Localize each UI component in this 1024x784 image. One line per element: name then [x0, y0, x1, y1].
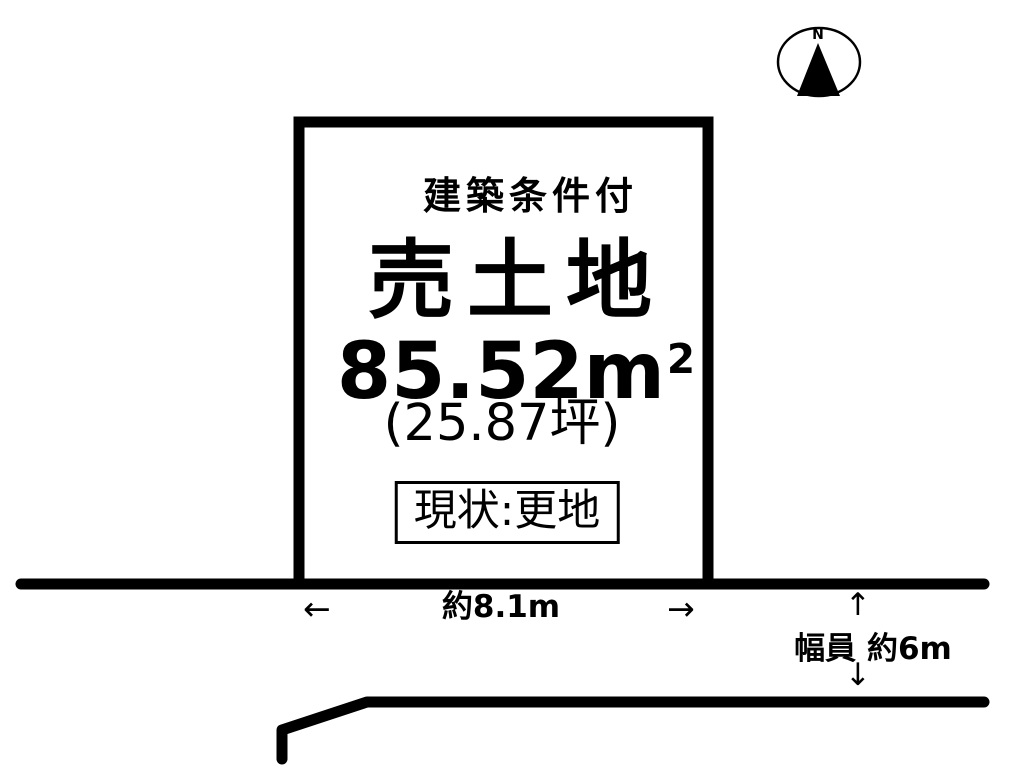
building-conditions-label: 建築条件付	[418, 176, 638, 218]
current-status-label: 現状:更地	[414, 486, 601, 536]
compass-north-label: N	[812, 27, 824, 43]
current-status-box: 現状:更地	[395, 481, 620, 544]
area-tsubo-value: (25.87坪)	[384, 398, 621, 449]
frontage-arrow-right-icon: →	[667, 592, 695, 625]
lower-road-line	[282, 702, 984, 759]
road-width-arrow-up-icon: ↑	[845, 590, 871, 621]
road-width-arrow-down-icon: ↓	[845, 660, 871, 691]
frontage-dimension-label: 約8.1m	[442, 592, 560, 623]
area-sqm-superscript: 2	[667, 335, 695, 383]
land-for-sale-title: 売土地	[355, 236, 665, 326]
land-plot-diagram: N 建築条件付 売土地 85.52m2 (25.87坪) 現状:更地 ← 約8.…	[0, 0, 1024, 784]
frontage-arrow-left-icon: ←	[303, 592, 331, 625]
road-width-label: 幅員 約6m	[794, 634, 952, 665]
compass-needle-icon	[797, 43, 840, 96]
